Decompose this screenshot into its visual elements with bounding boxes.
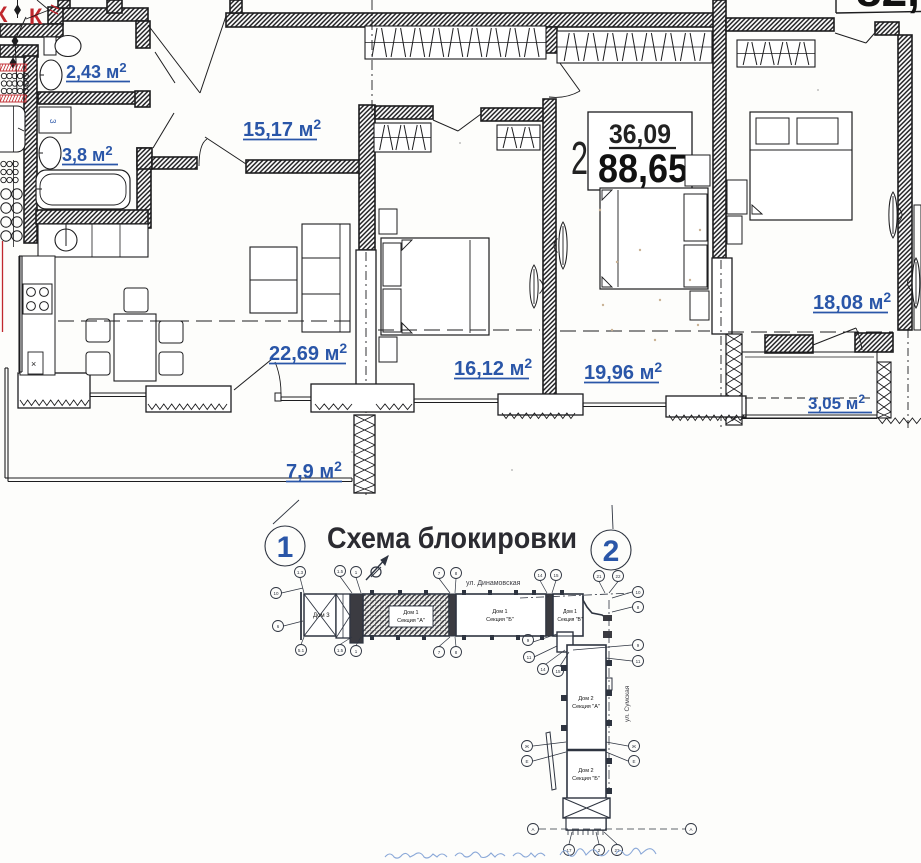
svg-text:15,17 м2: 15,17 м2 (243, 116, 321, 141)
svg-text:15: 15 (555, 669, 561, 674)
svg-text:82,65: 82,65 (856, 0, 921, 16)
svg-text:Е: Е (632, 759, 635, 764)
svg-text:1.5: 1.5 (337, 648, 344, 653)
svg-text:Дом 2: Дом 2 (578, 696, 593, 702)
svg-text:15: 15 (553, 573, 559, 578)
svg-text:Дом 1: Дом 1 (492, 609, 507, 615)
svg-text:21: 21 (596, 574, 602, 579)
svg-text:Секция "Б": Секция "Б" (486, 617, 514, 623)
svg-text:88,65: 88,65 (598, 147, 688, 191)
svg-text:К: К (0, 2, 8, 27)
svg-text:36,09: 36,09 (609, 119, 671, 149)
svg-text:1: 1 (277, 531, 294, 564)
svg-text:19,96 м2: 19,96 м2 (584, 359, 662, 384)
svg-text:ул. Сумская: ул. Сумская (624, 685, 631, 722)
svg-text:2: 2 (571, 132, 588, 184)
svg-text:3: 3 (48, 119, 57, 124)
svg-text:Секция "В": Секция "В" (557, 617, 582, 623)
svg-text:Схема блокировки: Схема блокировки (327, 522, 577, 555)
svg-text:5.1: 5.1 (298, 648, 305, 653)
svg-text:3,05 м2: 3,05 м2 (808, 392, 865, 413)
svg-text:2: 2 (603, 535, 620, 568)
svg-text:1.5: 1.5 (337, 569, 344, 574)
svg-text:11: 11 (527, 655, 532, 660)
svg-text:К: К (29, 4, 43, 29)
svg-text:А: А (531, 827, 534, 832)
svg-text:1.3: 1.3 (297, 570, 304, 575)
svg-text:2,43 м2: 2,43 м2 (66, 60, 127, 82)
svg-text:А: А (689, 827, 692, 832)
svg-text:Дом 1: Дом 1 (403, 610, 418, 616)
svg-text:16,12 м2: 16,12 м2 (454, 355, 532, 380)
svg-text:10: 10 (635, 590, 641, 595)
svg-text:7,9 м2: 7,9 м2 (286, 458, 342, 483)
svg-text:Секция "Б": Секция "Б" (572, 776, 600, 782)
svg-text:14: 14 (540, 667, 546, 672)
svg-text:14: 14 (537, 573, 543, 578)
svg-text:Секция "А": Секция "А" (397, 618, 425, 624)
svg-text:×: × (31, 359, 36, 369)
svg-text:Е: Е (525, 759, 528, 764)
svg-text:Дом 2: Дом 2 (578, 768, 593, 774)
svg-text:22: 22 (615, 574, 621, 579)
svg-text:18,08 м2: 18,08 м2 (813, 289, 891, 314)
svg-text:22,69 м2: 22,69 м2 (269, 340, 347, 365)
svg-text:11: 11 (636, 659, 641, 664)
svg-text:Секция "А": Секция "А" (572, 704, 600, 710)
svg-text:Дом 3: Дом 3 (313, 613, 330, 619)
svg-text:10: 10 (273, 591, 279, 596)
svg-text:3,8 м2: 3,8 м2 (62, 143, 113, 165)
svg-text:Дом 1: Дом 1 (563, 609, 577, 615)
svg-text:ул. Динамовская: ул. Динамовская (466, 580, 521, 587)
